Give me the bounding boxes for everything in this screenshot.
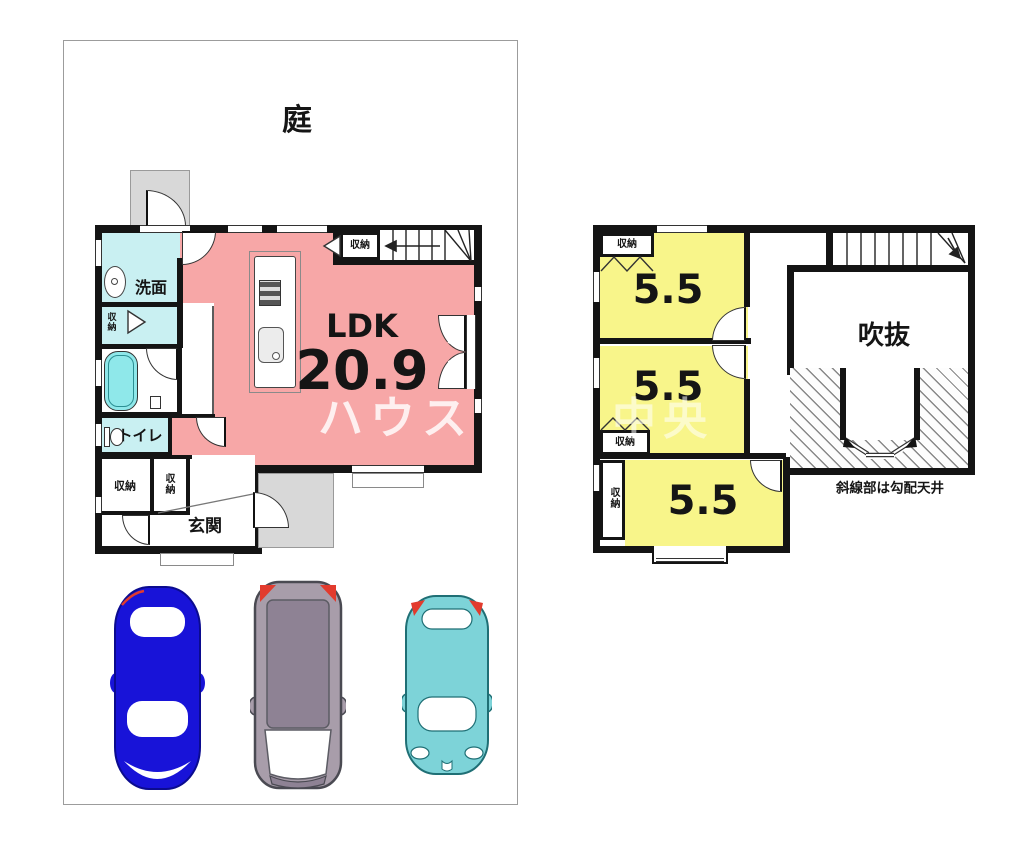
watermark-part2: 中央 (612, 398, 714, 442)
closet-2f-top-door-mark (601, 257, 653, 271)
watermark-part1: ハウスド (318, 396, 526, 441)
entrance-step-line (158, 494, 253, 513)
void-bay-window (843, 436, 917, 459)
stair-closet-door-mark (324, 236, 340, 256)
floorplan-canvas: 庭 収納 (0, 0, 1024, 844)
car-teal-compact (402, 591, 492, 779)
car-minivan (250, 578, 346, 793)
niche-door-mark (128, 311, 145, 333)
car-blue-sedan (110, 583, 205, 793)
stairs-2f-treads (847, 233, 965, 265)
